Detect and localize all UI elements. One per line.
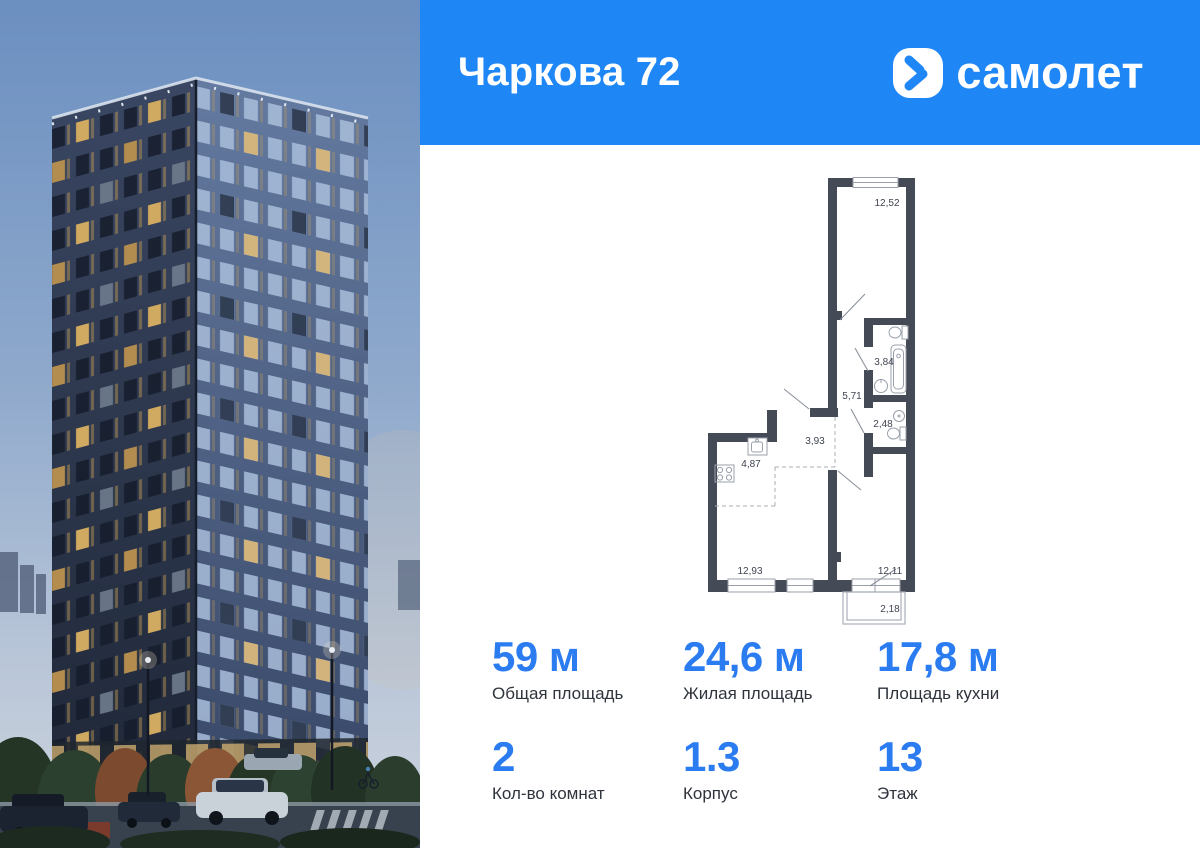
room-label: 5,71 — [842, 391, 862, 402]
washbasin-icon — [875, 380, 888, 393]
stat-value: 1.3 — [683, 735, 877, 779]
tower — [52, 78, 368, 812]
building-photo — [0, 0, 420, 848]
stat-value: 2 — [492, 735, 683, 779]
stat-label: Площадь кухни — [877, 684, 999, 704]
door-swings — [784, 294, 896, 586]
stat-label: Этаж — [877, 784, 999, 804]
listing-card: Чаркова 72 самолет — [0, 0, 1200, 848]
kitchen-sink-icon — [748, 438, 767, 455]
room-label: 12,52 — [874, 198, 899, 209]
room-label: 12,93 — [737, 566, 762, 577]
header-banner: Чаркова 72 самолет — [420, 0, 1200, 145]
sink-icon — [894, 411, 905, 422]
page-title: Чаркова 72 — [458, 50, 681, 95]
stat-total-area: 59 м Общая площадь — [492, 635, 683, 704]
stat-label: Корпус — [683, 784, 877, 804]
stat-kitchen-area: 17,8 м Площадь кухни — [877, 635, 999, 704]
room-label: 2,18 — [880, 604, 900, 615]
samolet-logo-icon — [893, 48, 943, 98]
stat-living-area: 24,6 м Жилая площадь — [683, 635, 877, 704]
stove-icon — [715, 465, 734, 482]
stat-building: 1.3 Корпус — [683, 735, 877, 804]
stat-label: Кол-во комнат — [492, 784, 683, 804]
stat-value: 24,6 м — [683, 635, 877, 679]
walls — [708, 178, 915, 592]
floor-plan: 12,52 3,84 5,71 2,48 3,93 4,87 12,93 12,… — [705, 175, 930, 630]
stat-floor: 13 Этаж — [877, 735, 999, 804]
stat-value: 13 — [877, 735, 999, 779]
brand-name: самолет — [956, 47, 1144, 99]
brand-logo: самолет — [893, 47, 1144, 99]
room-labels: 12,52 3,84 5,71 2,48 3,93 4,87 12,93 12,… — [737, 198, 902, 615]
toilet-icon — [889, 326, 908, 339]
room-label: 12,11 — [878, 566, 903, 577]
room-label: 3,84 — [874, 357, 894, 368]
room-label: 4,87 — [741, 459, 761, 470]
stats-grid: 59 м Общая площадь 24,6 м Жилая площадь … — [492, 635, 999, 804]
stat-value: 59 м — [492, 635, 683, 679]
stat-label: Жилая площадь — [683, 684, 877, 704]
stat-value: 17,8 м — [877, 635, 999, 679]
bathtub-icon — [891, 345, 906, 393]
stat-rooms: 2 Кол-во комнат — [492, 735, 683, 804]
room-label: 2,48 — [873, 419, 893, 430]
room-label: 3,93 — [805, 436, 825, 447]
stat-label: Общая площадь — [492, 684, 683, 704]
